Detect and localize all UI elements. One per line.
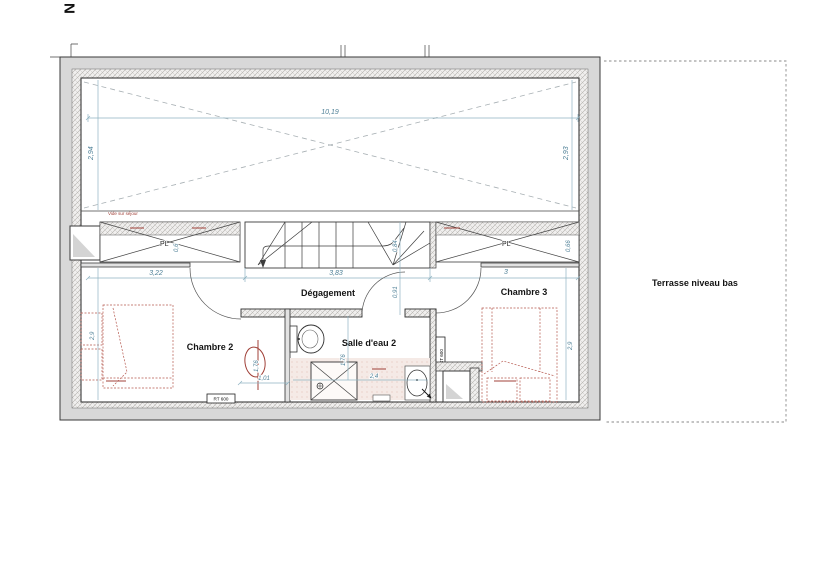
dimension-label: 3,83 [329,270,343,277]
terrace-outline: Terrasse niveau bas [604,61,786,422]
void-label: Vide sur séjour [108,211,138,216]
dimension-label: 0,6 [174,243,180,252]
closet-left: PL 0,6 [100,222,240,262]
dimension-label: 2,94 [88,146,95,161]
dimension-label: 0,84 [393,240,399,252]
window-left [70,226,100,260]
closet-right: PL 0,66 [436,222,579,262]
shower [311,362,357,400]
shower-step [373,395,390,401]
chambre2-label: Chambre 2 [187,342,234,352]
dimension-label: 2,4 [369,374,379,380]
dimension-label: 1,76 [341,354,347,366]
dimension-label: 2,9 [90,331,96,341]
north-arrow: N [61,3,78,14]
chambre3-label: Chambre 3 [501,287,548,297]
dimension-label: 10,19 [321,109,339,116]
salle-eau-label: Salle d'eau 2 [342,338,396,348]
dimension-label: 0,91 [393,286,399,298]
floor-plan-page: N Terrasse niveau bas Vide sur séjour 10… [0,0,840,560]
axis-ticks [50,44,429,57]
dimension-label: 0,66 [566,240,572,252]
floor-plan-drawing: N Terrasse niveau bas Vide sur séjour 10… [0,0,840,560]
dimension-label: 2,93 [563,146,570,161]
toilet [290,325,324,353]
closet-right-label: PL [502,241,511,248]
washbasin [405,366,431,400]
window-chambre3 [436,362,482,402]
dimension-label: 3 [504,269,508,276]
dimension-label: 2,9 [568,341,574,351]
closet-left-label: PL [160,241,169,248]
dimension-label: 3,22 [149,270,163,277]
dimension-label: 1,01 [258,376,270,382]
degagement-label: Dégagement [301,288,355,298]
radiator-chambre2: RT 600 [207,394,235,403]
svg-text:RT 600: RT 600 [214,397,229,402]
staircase [245,222,430,268]
wall-stub [430,222,436,268]
terrace-label: Terrasse niveau bas [652,278,738,288]
dimension-label: 1,76 [254,360,260,372]
